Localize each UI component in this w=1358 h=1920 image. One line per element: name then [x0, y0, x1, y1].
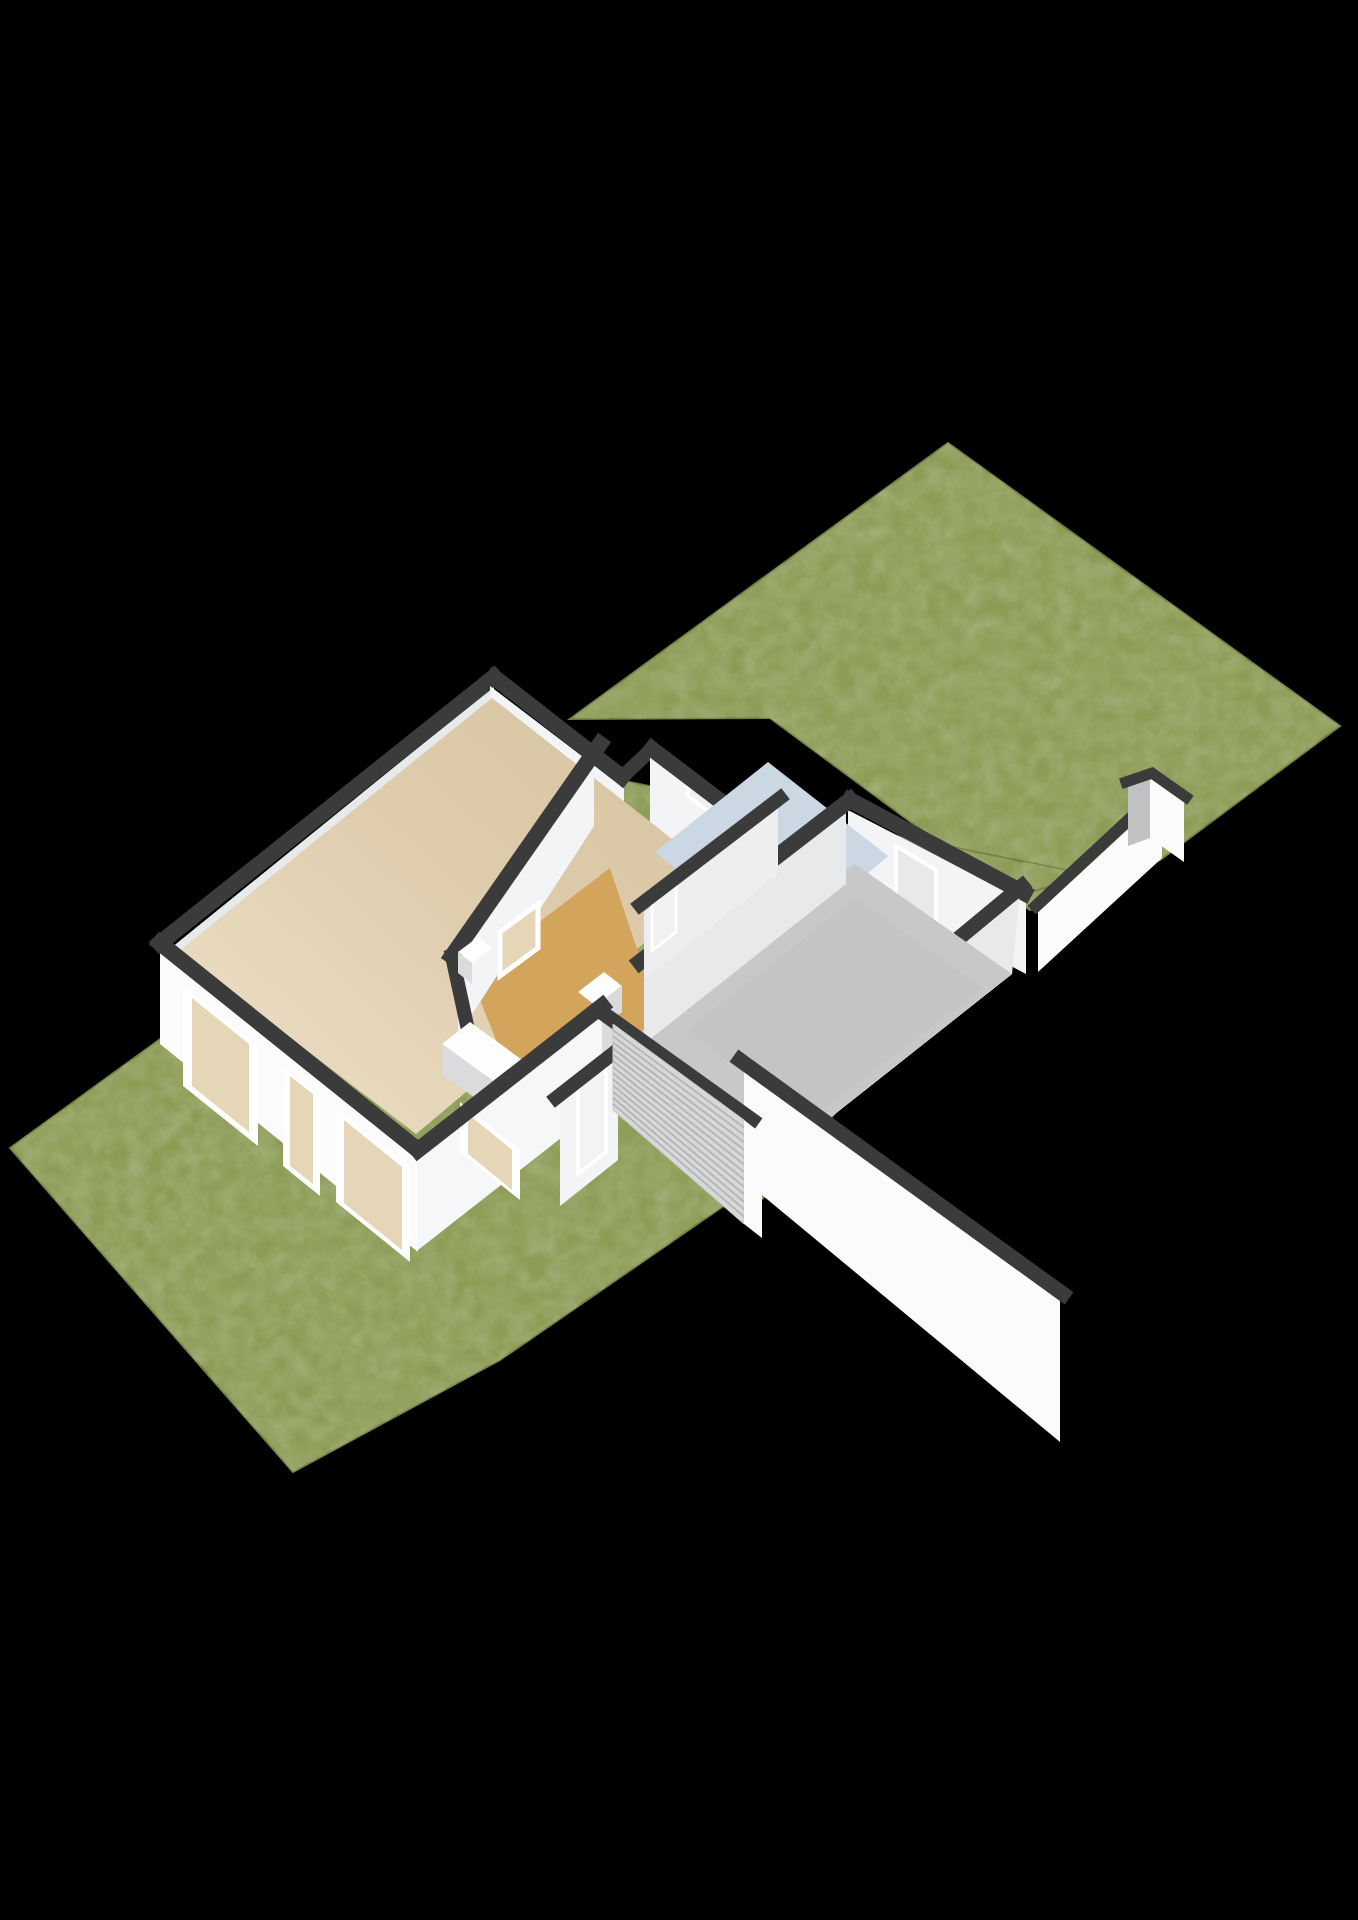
- scene-layers: [10, 443, 1340, 1472]
- window-2-glass: [290, 1076, 313, 1184]
- floorplan-3d-scene: [0, 0, 1358, 1920]
- floorplan-3d-viewport[interactable]: [0, 0, 1358, 1920]
- fence-post-inner-face: [1128, 776, 1150, 846]
- garage-door-right-strip: [744, 1120, 762, 1238]
